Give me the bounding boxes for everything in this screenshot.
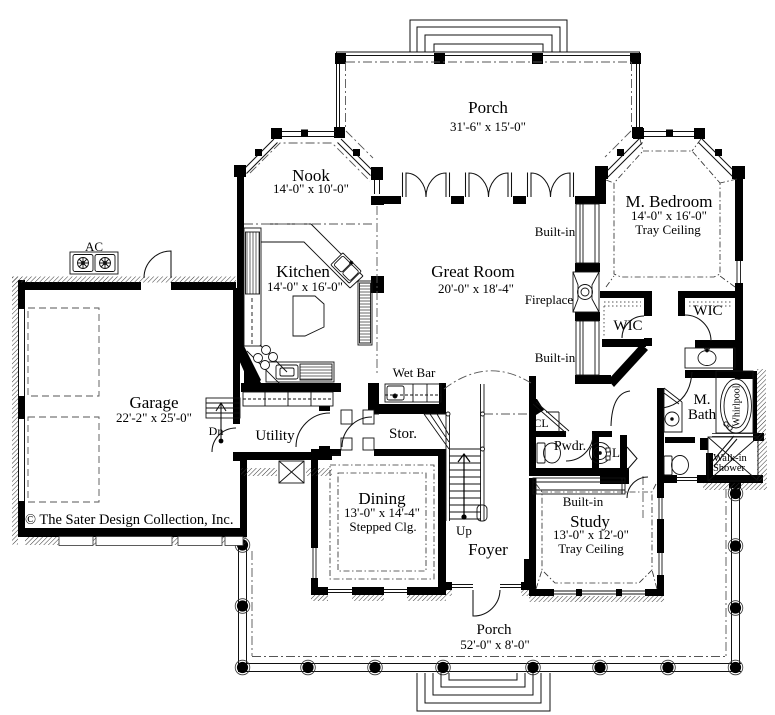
svg-text:M.: M. bbox=[693, 392, 710, 408]
svg-text:WIC: WIC bbox=[613, 318, 642, 334]
svg-text:13'-0" x 12'-0": 13'-0" x 12'-0" bbox=[553, 527, 629, 542]
svg-text:Wet Bar: Wet Bar bbox=[393, 365, 436, 380]
svg-text:Up: Up bbox=[456, 523, 472, 538]
svg-text:20'-0" x 18'-4": 20'-0" x 18'-4" bbox=[438, 281, 514, 296]
svg-text:Built-in: Built-in bbox=[535, 224, 576, 239]
svg-text:Whirlpool: Whirlpool bbox=[732, 385, 743, 426]
svg-text:14'-0" x 16'-0": 14'-0" x 16'-0" bbox=[631, 208, 707, 223]
svg-text:Fireplace: Fireplace bbox=[525, 292, 574, 307]
svg-text:Tray Ceiling: Tray Ceiling bbox=[635, 222, 701, 237]
svg-text:Porch: Porch bbox=[477, 622, 512, 638]
svg-text:31'-6" x 15'-0": 31'-6" x 15'-0" bbox=[450, 119, 526, 134]
svg-text:CL: CL bbox=[533, 416, 548, 430]
svg-text:14'-0" x 16'-0": 14'-0" x 16'-0" bbox=[267, 279, 343, 294]
svg-text:Great Room: Great Room bbox=[431, 262, 515, 281]
svg-text:52'-0" x 8'-0": 52'-0" x 8'-0" bbox=[460, 637, 529, 652]
svg-text:AC: AC bbox=[85, 239, 103, 254]
svg-text:Tray Ceiling: Tray Ceiling bbox=[558, 541, 624, 556]
svg-text:13'-0" x 14'-4": 13'-0" x 14'-4" bbox=[344, 505, 420, 520]
svg-text:22'-2" x 25'-0": 22'-2" x 25'-0" bbox=[116, 410, 192, 425]
svg-text:Pwdr.: Pwdr. bbox=[554, 439, 586, 454]
svg-text:Porch: Porch bbox=[468, 98, 508, 117]
svg-text:Dn: Dn bbox=[209, 424, 224, 438]
svg-text:Stepped Clg.: Stepped Clg. bbox=[349, 519, 416, 534]
svg-text:14'-0" x 10'-0": 14'-0" x 10'-0" bbox=[273, 181, 349, 196]
svg-text:Built-in: Built-in bbox=[563, 494, 604, 509]
svg-text:© The Sater Design Collection,: © The Sater Design Collection, Inc. bbox=[25, 512, 233, 528]
svg-text:Bath: Bath bbox=[688, 407, 717, 423]
svg-text:WIC: WIC bbox=[693, 303, 722, 319]
svg-text:Stor.: Stor. bbox=[389, 426, 417, 442]
svg-text:Foyer: Foyer bbox=[468, 540, 508, 559]
svg-text:L: L bbox=[612, 445, 620, 460]
svg-text:Built-in: Built-in bbox=[535, 350, 576, 365]
svg-text:Shower: Shower bbox=[713, 463, 746, 474]
svg-text:Utility: Utility bbox=[255, 428, 295, 444]
